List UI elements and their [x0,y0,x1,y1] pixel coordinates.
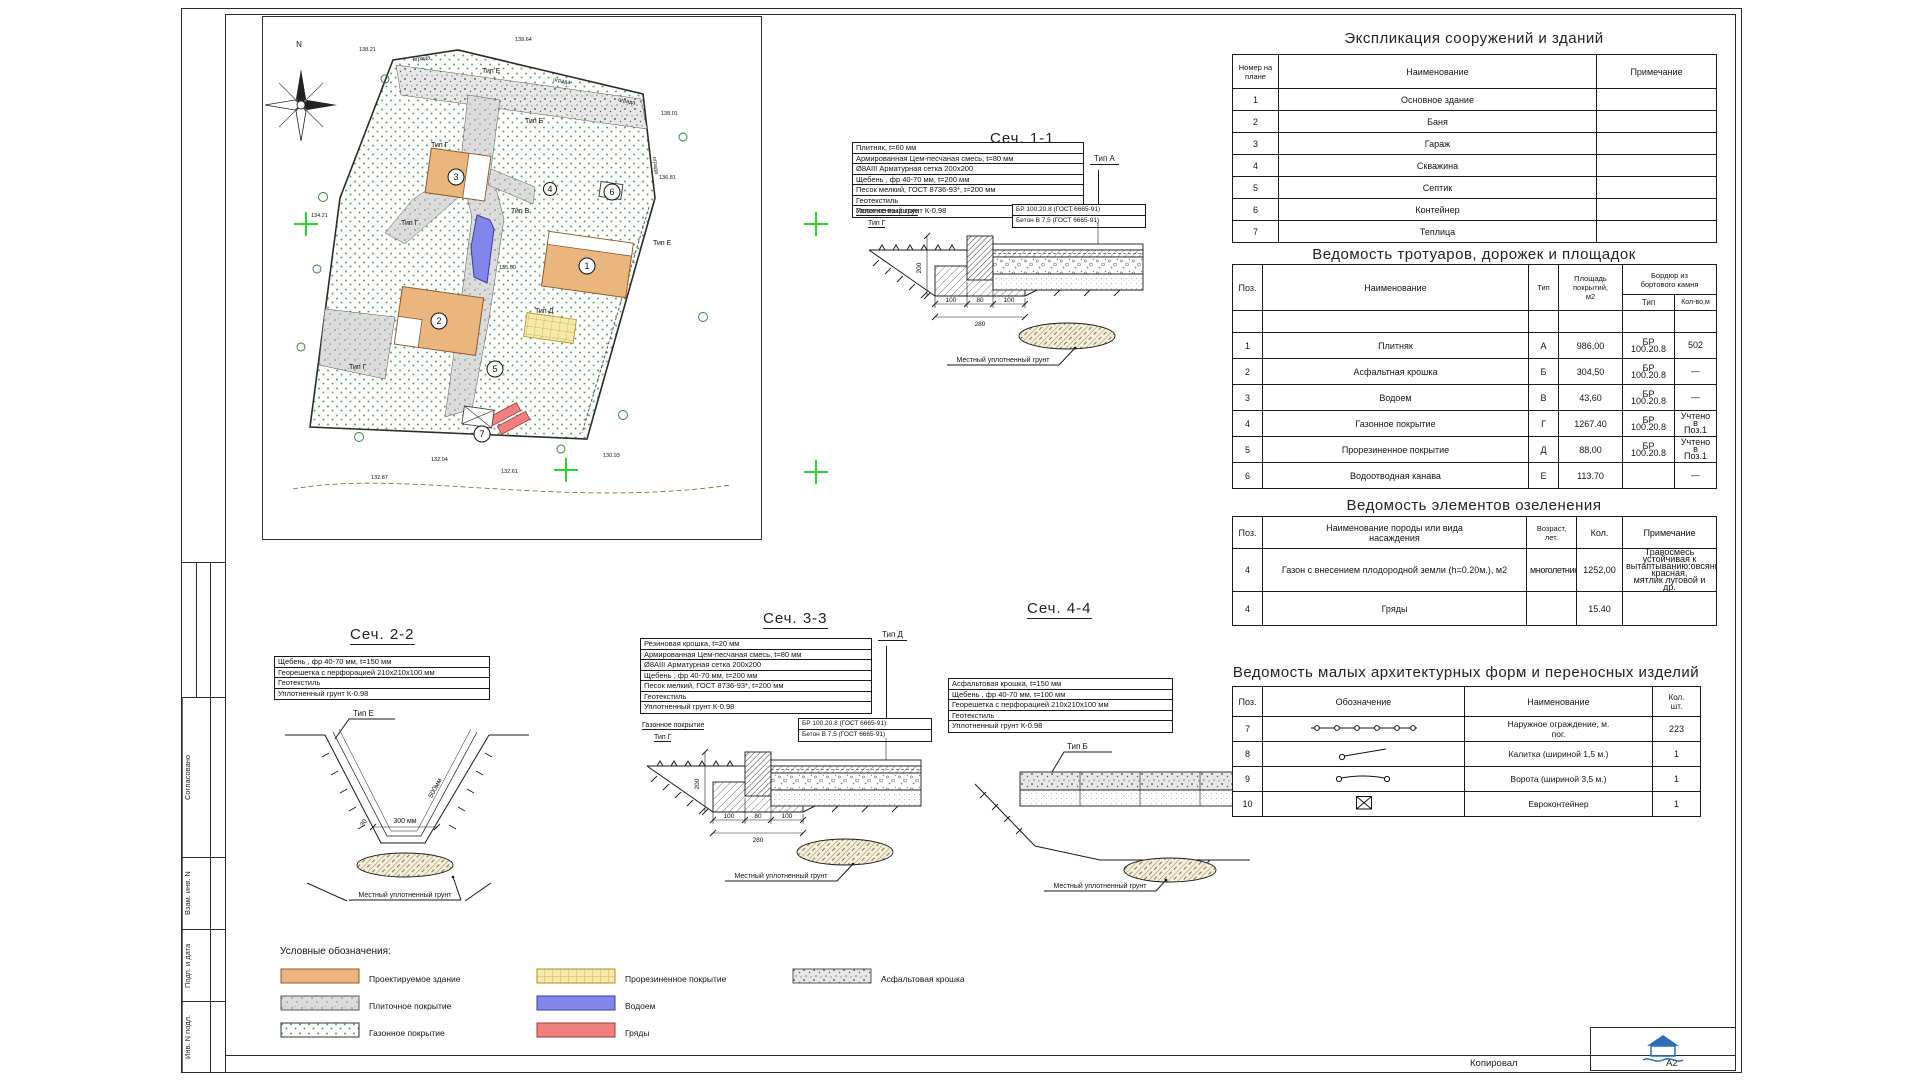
cell-name: Гряды [1263,592,1527,626]
cell-type: Г [1529,411,1559,437]
registration-cross [804,212,828,236]
col-header: Поз. [1233,687,1263,717]
cell-area: 88,00 [1559,437,1623,463]
cell-note [1597,177,1717,199]
col-header: Наименование [1279,55,1597,89]
symbol-cell [1263,792,1465,817]
section-4-4-drawing: Тип Б Местный уплотненный грунт [960,732,1260,894]
cell-type: Б [1529,359,1559,385]
cell-qty: 223 [1653,717,1701,742]
svg-text:Тип Д: Тип Д [535,308,554,315]
svg-text:135.50: 135.50 [499,265,516,271]
maf-table: Поз. Обозначение Наименование Кол. шт. 7… [1232,686,1701,817]
svg-text:130.93: 130.93 [603,453,620,459]
cell-pos: 4 [1233,411,1263,437]
cell-type: Д [1529,437,1559,463]
cell-num: 7 [1233,221,1279,243]
layer-spec: Армированная Цем-песчаная смесь, t=80 мм [641,650,871,661]
cell-len: — [1675,385,1717,411]
surface-label: Газонное покрытие [642,722,704,730]
table-row: 3 Гараж [1233,133,1717,155]
cell-len: — [1675,463,1717,489]
col-header: Примечание [1623,517,1717,549]
cell-curb [1623,463,1675,489]
cell-curb: БР 100.20.8 [1623,333,1675,359]
stamp-label: Инв. N подл. [182,1002,197,1072]
svg-text:300 мм: 300 мм [393,818,416,825]
svg-text:N: N [296,40,302,49]
table-row: 1 Основное здание [1233,89,1717,111]
cell-name: Прорезиненное покрытие [1263,437,1529,463]
svg-text:132.87: 132.87 [371,475,388,481]
stamp-label: Согласовано [182,698,197,857]
cell-note [1597,133,1717,155]
legend-swatch [280,968,360,989]
legend-item: Прорезиненное покрытие [536,968,792,989]
svg-text:Местный уплотненный грунт: Местный уплотненный грунт [359,891,453,899]
layer-spec: Ø8АIII Арматурная сетка 200х200 [853,164,1083,175]
cell-num: 3 [1233,133,1279,155]
cell-name: Водоотводная канава [1263,463,1529,489]
cell-note [1597,89,1717,111]
cell-name: Скважина [1279,155,1597,177]
expl-table: Номер на плане Наименование Примечание 1… [1232,54,1717,243]
svg-text:100: 100 [724,813,735,820]
table-row: 3 Водоем В 43,60 БР 100.20.8 — [1233,385,1717,411]
table-row: 7 Теплица [1233,221,1717,243]
stamp-block: Подп. и дата [181,930,226,1002]
svg-text:30: 30 [359,818,369,828]
curb-spec: БР 100.20.8 (ГОСТ 6665-91) [799,719,931,730]
stamp-block: Согласовано [181,698,226,858]
cell-qty: 15.40 [1577,592,1623,626]
cell-name: Плитняк [1263,333,1529,359]
cell-pos: 5 [1233,437,1263,463]
legend-label: Гряды [625,1028,649,1038]
section-title: Сеч. 3-3 [763,610,828,629]
svg-text:132.61: 132.61 [501,469,518,475]
svg-text:Тип В: Тип В [511,208,530,215]
svg-text:Тип Е: Тип Е [653,240,672,247]
table-row: 4 Скважина [1233,155,1717,177]
cell-name: Газонное покрытие [1263,411,1529,437]
col-header: Наименование [1263,265,1529,311]
col-header: Наименование [1465,687,1653,717]
svg-text:132.04: 132.04 [431,457,448,463]
symbol-cell [1263,767,1465,792]
col-header: Наименование породы или вида насаждения [1263,517,1527,549]
layer-spec: Асфальтовая крошка, t=150 мм [949,679,1172,690]
stamp-empty-block [181,562,226,698]
pavements-table: Поз. Наименование Тип Площадь покрытий, … [1232,264,1717,489]
layer-spec: Георешетка с перфорацией 210х210х100 мм [275,668,489,679]
registration-cross [804,460,828,484]
table-title-pavements: Ведомость тротуаров, дорожек и площадок [1232,246,1716,263]
cell-name: Баня [1279,111,1597,133]
col-header: Номер на плане [1233,55,1279,89]
cell-curb: БР 100.20.8 [1623,359,1675,385]
symbol-cell [1263,742,1465,767]
svg-text:138.01: 138.01 [661,111,678,117]
col-header: Тип [1623,295,1675,311]
layer-stack: Резиновая крошка, t=20 ммАрмированная Це… [640,638,872,714]
table-row: 9 Ворота (шириной 3,5 м.) 1 [1233,767,1701,792]
cell-pos: 10 [1233,792,1263,817]
cell-qty: 1252,00 [1577,549,1623,592]
cell-age: многолетники [1527,549,1577,592]
copied-label: Копировал [1470,1058,1518,1069]
svg-text:Местный уплотненный грунт: Местный уплотненный грунт [735,872,829,880]
svg-text:100: 100 [946,297,957,304]
north-compass-icon: N [265,40,337,141]
svg-text:200: 200 [916,262,923,273]
cell-num: 1 [1233,89,1279,111]
layer-stack: Асфальтовая крошка, t=150 ммЩебень , фр … [948,678,1173,733]
cell-name: Наружное ограждение, м. пог. [1465,717,1653,742]
table-row: 8 Калитка (шириной 1,5 м.) 1 [1233,742,1701,767]
greenery-table: Поз. Наименование породы или вида насажд… [1232,516,1717,626]
cell-len: 502 [1675,333,1717,359]
section-2-2: Сеч. 2-2 Щебень , фр 40-70 мм, t=150 ммГ… [262,612,562,907]
layer-spec: Резиновая крошка, t=20 мм [641,639,871,650]
layer-spec: Щебень , фр 40-70 мм, t=200 мм [853,175,1083,186]
cell-len: Учтено в Поз.1 [1675,437,1717,463]
cell-qty: 1 [1653,767,1701,792]
table-row: 2 Баня [1233,111,1717,133]
table-title-maf: Ведомость малых архитектурных форм и пер… [1232,664,1700,681]
cell-pos: 4 [1233,592,1263,626]
svg-text:2: 2 [436,316,441,326]
legend-label: Асфальтовая крошка [881,974,965,984]
layer-spec: Плитняк, t=60 мм [853,143,1083,154]
cell-qty: 1 [1653,792,1701,817]
cell-area: 1267.40 [1559,411,1623,437]
layer-spec: Армированная Цем-песчаная смесь, t=80 мм [853,154,1083,165]
maf-symbol-icon [1329,777,1399,787]
table-row: 1 Плитняк А 986,00 БР 100.20.8 502 [1233,333,1717,359]
maf-symbol-icon [1309,726,1419,736]
stamp-block: Инв. N подл. [181,1002,226,1073]
title-block-strip: Согласовано Взам. инв. N Подп. и дата Ин… [181,562,226,1073]
cell-type: Е [1529,463,1559,489]
layer-spec: Песок мелкий, ГОСТ 8736-93*, t=200 мм [641,681,871,692]
legend-label: Водоем [625,1001,655,1011]
table-row: 6 Контейнер [1233,199,1717,221]
cell-note [1597,155,1717,177]
maf-symbol-icon [1332,753,1396,763]
cell-type: А [1529,333,1559,359]
svg-text:3: 3 [453,172,458,182]
legend-item: Асфальтовая крошка [792,968,1032,989]
layer-spec: Уплотненный грунт К-0.98 [275,689,489,700]
legend-swatch [280,995,360,1016]
cell-name: Ворота (шириной 3,5 м.) [1465,767,1653,792]
cell-num: 2 [1233,111,1279,133]
svg-text:139.64: 139.64 [515,37,532,43]
legend-swatch [536,968,616,989]
legend-title: Условные обозначения: [280,946,1050,957]
section-4-4: Сеч. 4-4 Асфальтовая крошка, t=150 ммЩеб… [930,592,1275,897]
layer-spec: Щебень , фр 40-70 мм, t=200 мм [641,671,871,682]
table-title-greenery: Ведомость элементов озеленения [1232,497,1716,514]
layer-spec: Уплотненный грунт К-0.98 [949,721,1172,732]
svg-text:136.81: 136.81 [659,175,676,181]
svg-text:Тип Б: Тип Б [1067,742,1088,751]
cell-age [1527,592,1577,626]
col-header: Поз. [1233,265,1263,311]
col-header: Возраст, лет. [1527,517,1577,549]
type-flag: Тип Д [878,630,907,641]
stamp-block: Взам. инв. N [181,858,226,930]
layer-spec: Песок мелкий, ГОСТ 8736-93*, t=200 мм [853,185,1083,196]
table-row: 2 Асфальтная крошка Б 304,50 БР 100.20.8… [1233,359,1717,385]
cell-area: 113.70 [1559,463,1623,489]
cell-name: Основное здание [1279,89,1597,111]
section-3-3-drawing: 200 100 80 100 280 Местный уплотненный г… [633,738,953,896]
layer-spec: Геотекстиль [275,678,489,689]
legend-swatch [792,968,872,989]
surface-label: Газонное покрытие [856,208,918,216]
col-header: Поз. [1233,517,1263,549]
symbol-cell [1263,717,1465,742]
svg-text:Местный уплотненный грунт: Местный уплотненный грунт [957,356,1051,364]
col-header: Кол. [1577,517,1623,549]
registration-cross [294,212,318,236]
cell-curb: БР 100.20.8 [1623,411,1675,437]
greenhouse [462,406,494,428]
section-title: Сеч. 4-4 [1027,600,1092,619]
legend-label: Плиточное покрытие [369,1001,451,1011]
cell-area: 304,50 [1559,359,1623,385]
col-header: Обозначение [1263,687,1465,717]
svg-text:280: 280 [975,321,986,328]
svg-text:138.21: 138.21 [359,47,376,53]
cell-pos: 1 [1233,333,1263,359]
cell-pos: 4 [1233,549,1263,592]
table-row: 5 Септик [1233,177,1717,199]
svg-text:Тип Г: Тип Г [349,364,367,371]
registration-cross [554,458,578,482]
cell-pos: 3 [1233,385,1263,411]
stamp-label: Подп. и дата [182,930,197,1001]
cell-note [1623,592,1717,626]
table-row: 4 Газон с внесением плодородной земли (h… [1233,549,1717,592]
svg-text:Тип Е: Тип Е [353,709,374,718]
table-row: 7 Наружное ограждение, м. пог. 223 [1233,717,1701,742]
company-logo [1590,1027,1736,1071]
cell-pos: 9 [1233,767,1263,792]
contour-line [293,483,731,493]
stamp-label: Взам. инв. N [182,858,197,929]
section-1-1-drawing: 200 100 80 100 280 Местный уплотненный г… [855,222,1175,380]
cell-name: Теплица [1279,221,1597,243]
cell-num: 4 [1233,155,1279,177]
cell-pos: 2 [1233,359,1263,385]
layer-spec: Георешетка с перфорацией 210х210х100 мм [949,700,1172,711]
cell-num: 5 [1233,177,1279,199]
type-flag: Тип А [1090,154,1119,165]
layer-stack: Щебень , фр 40-70 мм, t=150 ммГеорешетка… [274,656,490,700]
legend-item: Гряды [536,1022,792,1043]
svg-text:Тип Б: Тип Б [525,118,544,125]
svg-text:Тип Г: Тип Г [431,142,449,149]
section-2-2-drawing: Тип Е 300 мм 500мм 30 Местный уплотненны… [277,705,539,905]
col-header: Бордюр из бортового камня [1623,265,1717,295]
layer-spec: Ø8АIII Арматурная сетка 200х200 [641,660,871,671]
legend-item: Проектируемое здание [280,968,536,989]
svg-text:280: 280 [753,837,764,844]
cell-num: 6 [1233,199,1279,221]
cell-name: Калитка (шириной 1,5 м.) [1465,742,1653,767]
legend-swatch [536,1022,616,1043]
cell-pos: 8 [1233,742,1263,767]
company-logo-icon [1635,1032,1691,1066]
table-row: 4 Газонное покрытие Г 1267.40 БР 100.20.… [1233,411,1717,437]
cell-name: Септик [1279,177,1597,199]
cell-area: 43,60 [1559,385,1623,411]
cell-qty: 1 [1653,742,1701,767]
table-title-expl: Экспликация сооружений и зданий [1232,30,1716,47]
table-row: 6 Водоотводная канава Е 113.70 — [1233,463,1717,489]
svg-text:200: 200 [694,778,701,789]
table-row: 10 Евроконтейнер 1 [1233,792,1701,817]
site-plan-drawing: N [263,17,761,539]
legend-item: Газонное покрытие [280,1022,536,1043]
cell-note: Травосмесь устойчивая к вытаптыванию:овс… [1623,549,1717,592]
svg-text:80: 80 [754,813,762,820]
cell-name: Контейнер [1279,199,1597,221]
site-plan: N [262,16,762,540]
layer-spec: Уплотненный грунт К-0.98 [641,702,871,713]
col-header: Тип [1529,265,1559,311]
cell-area: 986,00 [1559,333,1623,359]
col-header: Площадь покрытий, м2 [1559,265,1623,311]
cell-pos: 7 [1233,717,1263,742]
svg-text:Тип Е: Тип Е [482,68,501,75]
svg-text:4: 4 [547,184,552,194]
legend-item: Водоем [536,995,792,1016]
col-header: Кол-во,м [1675,295,1717,311]
svg-text:80: 80 [976,297,984,304]
table-row: 5 Прорезиненное покрытие Д 88,00 БР 100.… [1233,437,1717,463]
svg-text:Тип Г: Тип Г [401,220,419,227]
spacer-row [1233,311,1717,333]
cell-name: Евроконтейнер [1465,792,1653,817]
layer-spec: Геотекстиль [641,692,871,703]
cell-len: Учтено в Поз.1 [1675,411,1717,437]
cell-note [1597,221,1717,243]
layer-spec: Щебень , фр 40-70 мм, t=150 мм [275,657,489,668]
cell-name: Гараж [1279,133,1597,155]
section-title: Сеч. 2-2 [350,626,415,645]
cell-pos: 6 [1233,463,1263,489]
section-1-1: Сеч. 1-1 Плитняк, t=60 ммАрмированная Це… [840,126,1185,391]
legend-label: Проектируемое здание [369,974,461,984]
cell-len: — [1675,359,1717,385]
curb-spec: БР 100.20.8 (ГОСТ 6665-91) [1013,205,1145,216]
cell-name: Газон с внесением плодородной земли (h=0… [1263,549,1527,592]
legend-swatch [536,995,616,1016]
legend-item: Плиточное покрытие [280,995,536,1016]
legend-label: Газонное покрытие [369,1028,445,1038]
svg-text:Местный уплотненный грунт: Местный уплотненный грунт [1054,882,1148,890]
cell-curb: БР 100.20.8 [1623,385,1675,411]
section-3-3: Сеч. 3-3 Резиновая крошка, t=20 ммАрмиро… [628,598,973,903]
svg-text:1: 1 [584,261,589,271]
cell-type: В [1529,385,1559,411]
legend-swatch [280,1022,360,1043]
cell-curb: БР 100.20.8 [1623,437,1675,463]
cell-note [1597,111,1717,133]
table-row: 4 Гряды 15.40 [1233,592,1717,626]
svg-text:5: 5 [492,364,497,374]
legend-label: Прорезиненное покрытие [625,974,726,984]
layer-spec: Геотекстиль [949,711,1172,722]
col-header: Примечание [1597,55,1717,89]
layer-spec: Щебень , фр 40-70 мм, t=100 мм [949,690,1172,701]
svg-text:100: 100 [782,813,793,820]
svg-text:100: 100 [1004,297,1015,304]
cell-name: Водоем [1263,385,1529,411]
cell-note [1597,199,1717,221]
maf-symbol-icon [1355,803,1373,813]
col-header: Кол. шт. [1653,687,1701,717]
legend: Условные обозначения: Проектируемое здан… [280,946,1050,1046]
cell-name: Асфальтная крошка [1263,359,1529,385]
svg-text:7: 7 [479,429,484,439]
svg-text:6: 6 [609,187,614,197]
